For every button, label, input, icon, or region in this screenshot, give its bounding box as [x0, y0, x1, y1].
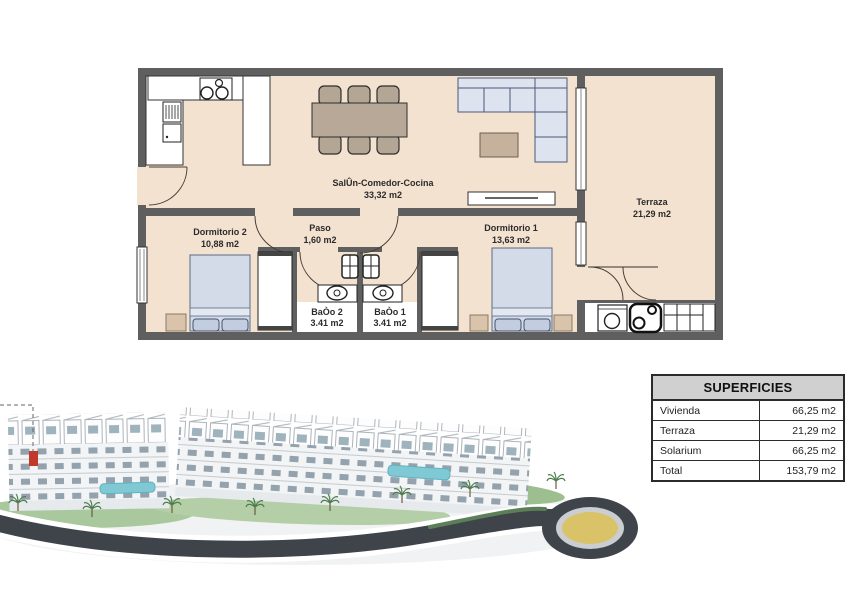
- row-label: Terraza: [652, 421, 760, 441]
- kitchen-counter-right: [243, 76, 270, 165]
- table-title: SUPERFICIES: [652, 375, 844, 400]
- table-row: Total 153,79 m2: [652, 461, 844, 482]
- dishwasher-icon: [163, 124, 181, 142]
- label-salon-area: 33,32 m2: [364, 190, 402, 200]
- label-dormitorio2-area: 10,88 m2: [201, 239, 239, 249]
- row-label: Solarium: [652, 441, 760, 461]
- row-value: 21,29 m2: [760, 421, 844, 441]
- shower-icon: [363, 255, 379, 278]
- label-bano1-area: 3.41 m2: [373, 318, 406, 328]
- label-salon: SalÛn-Comedor-Cocina: [332, 177, 434, 188]
- highlighted-unit-marker: [29, 451, 38, 466]
- floor-plan: SalÛn-Comedor-Cocina 33,32 m2 Paso 1,60 …: [133, 58, 729, 348]
- shower-icon: [342, 255, 358, 278]
- plan-sheet: SalÛn-Comedor-Cocina 33,32 m2 Paso 1,60 …: [0, 0, 850, 614]
- label-dormitorio1: Dormitorio 1: [484, 223, 538, 233]
- site-render-illustration: [0, 385, 650, 570]
- fridge-icon: [163, 102, 181, 122]
- superficies-table: SUPERFICIES Vivienda 66,25 m2 Terraza 21…: [651, 374, 845, 482]
- roundabout: [542, 497, 638, 559]
- label-paso-area: 1,60 m2: [303, 235, 336, 245]
- sink-icon: [363, 285, 402, 302]
- dining-table: [312, 103, 407, 137]
- coffee-table: [480, 133, 518, 157]
- label-terraza: Terraza: [636, 197, 668, 207]
- label-terraza-area: 21,29 m2: [633, 209, 671, 219]
- nightstand: [554, 315, 572, 331]
- nightstand: [470, 315, 488, 331]
- row-label: Vivienda: [652, 400, 760, 421]
- label-dormitorio1-area: 13,63 m2: [492, 235, 530, 245]
- dining-set: [312, 86, 407, 154]
- label-bano2-area: 3.41 m2: [310, 318, 343, 328]
- bedroom1-window: [576, 222, 586, 265]
- label-paso: Paso: [309, 223, 331, 233]
- bed-dormitorio2: [190, 255, 250, 331]
- nightstand: [166, 314, 186, 331]
- table-row: Vivienda 66,25 m2: [652, 400, 844, 421]
- sink-icon: [318, 285, 357, 302]
- tv-unit: [468, 192, 555, 205]
- stove-icon: [200, 78, 232, 100]
- label-dormitorio2: Dormitorio 2: [193, 227, 247, 237]
- row-value: 153,79 m2: [760, 461, 844, 482]
- table-row: Solarium 66,25 m2: [652, 441, 844, 461]
- laundry-sink-icon: [630, 304, 661, 332]
- living-window: [576, 88, 586, 190]
- table-row: Terraza 21,29 m2: [652, 421, 844, 441]
- row-label: Total: [652, 461, 760, 482]
- row-value: 66,25 m2: [760, 441, 844, 461]
- row-value: 66,25 m2: [760, 400, 844, 421]
- bed-dormitorio1: [492, 248, 552, 331]
- label-bano2: BaÒo 2: [311, 306, 343, 317]
- bedroom2-window: [137, 247, 147, 303]
- label-bano1: BaÒo 1: [374, 306, 406, 317]
- washing-machine-icon: [598, 305, 627, 331]
